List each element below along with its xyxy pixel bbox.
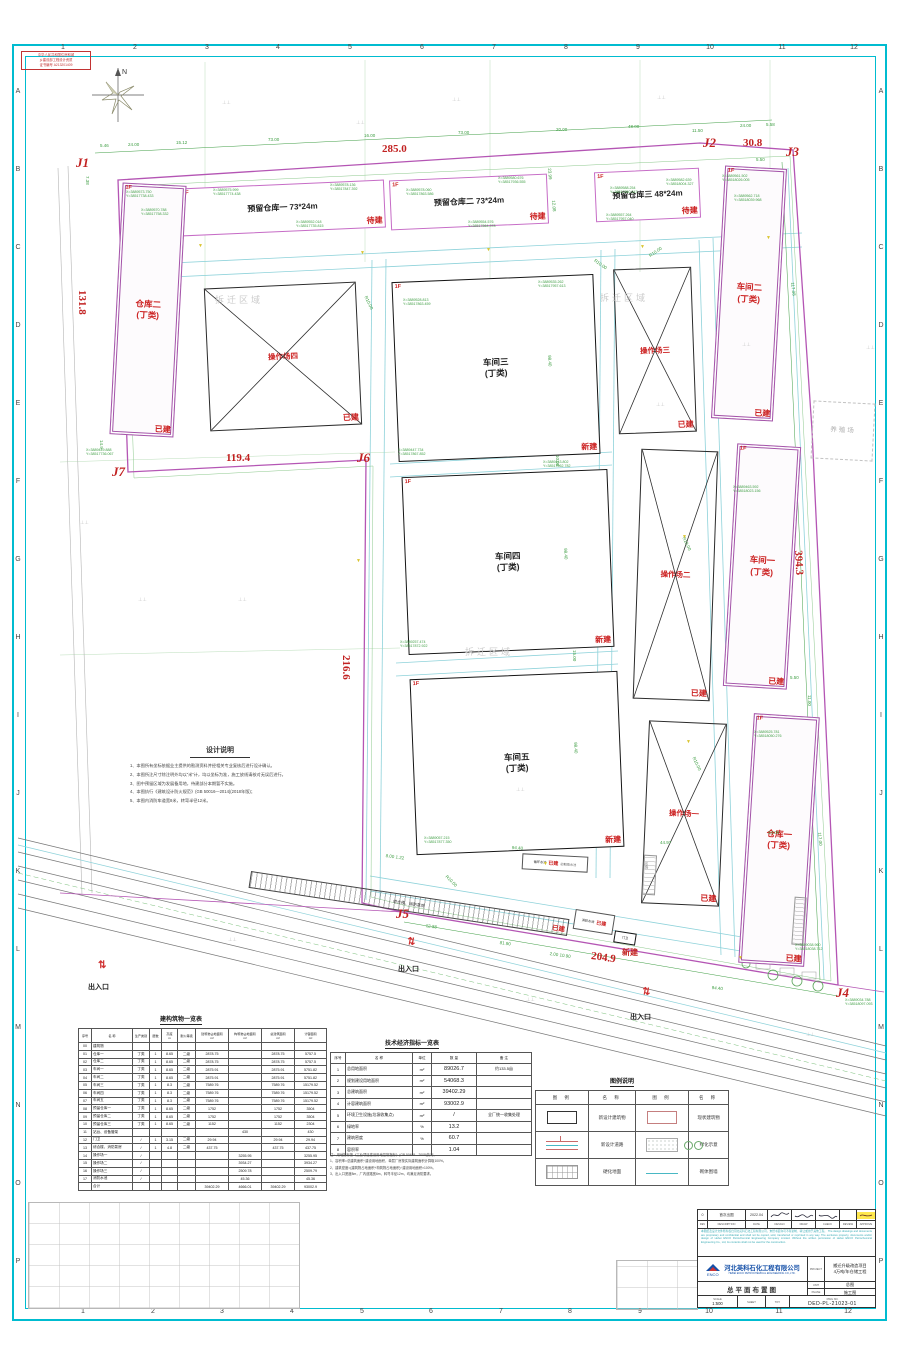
phase-label: PHASE (808, 1289, 825, 1296)
floor-label: 1F (756, 715, 763, 721)
table-row: 12门卫/13.15二级29.9429.9429.94 (79, 1136, 327, 1144)
building-label: 预留仓库二 73*24m (434, 195, 505, 208)
company-logo-icon: ENCO (705, 1262, 721, 1277)
table-cell (229, 1081, 262, 1089)
coordinate-label: X=3889447.734 Y=38517867.852 (398, 448, 425, 457)
dimension-label: 48.00 (628, 124, 639, 129)
coordinate-label: X=3889580.676 Y=38517936.555 (498, 176, 525, 185)
table-cell: 8.3 (162, 1089, 178, 1097)
coordinate-label: X=3889525.781 Y=38518050.276 (754, 730, 781, 739)
table-row: 16操作场三/2509.782509.79 (79, 1167, 327, 1175)
table-cell: 丁类 (133, 1058, 150, 1066)
floor-label: 1F (597, 174, 604, 180)
table-cell: 综合楼、消防泵房 (92, 1144, 133, 1152)
table-cell: 00 (79, 1043, 92, 1051)
company-name-cn: 河北英科石化工程有限公司 (724, 1263, 800, 1272)
scale-value: 1:500 (712, 1301, 722, 1306)
table-cell: 3255.95 (295, 1152, 327, 1160)
table-cell: 计容面积 m² (295, 1029, 327, 1043)
table-cell: 操作场一 (92, 1152, 133, 1160)
table-cell: 约133.5亩 (477, 1064, 532, 1076)
table-cell: m² (413, 1075, 432, 1087)
review-signature (840, 1210, 857, 1220)
survey-marker-icon: ▼ (356, 558, 361, 564)
table-cell (229, 1043, 262, 1051)
table-cell: 操作场二 (92, 1159, 133, 1167)
grid-marker-label: J2 (703, 135, 716, 151)
building-yard-3: 操作场三已建 (613, 267, 697, 435)
table-cell: % (413, 1121, 432, 1133)
table-cell (262, 1159, 295, 1167)
table-cell: 二级 (178, 1097, 196, 1105)
table-cell: m² (413, 1064, 432, 1076)
demolition-area-watermark: 拆迁区域 (465, 647, 513, 658)
table-cell: 2509.79 (295, 1167, 327, 1175)
revision-header-row: REV DESCRIPTION DATE DESIGN DRAW CHECK R… (698, 1221, 875, 1229)
design-note-line: 4、本图执行《建筑设计防火规范》(GB 50016—2014)(2018年版)； (130, 788, 430, 797)
table-row: 07车间五丁类18.3二级7589.767589.7615179.52 (79, 1097, 327, 1105)
boundary-dimension-label: 119.4 (226, 452, 250, 465)
table-cell: 12 (79, 1136, 92, 1144)
drawing-title: 总平面布置图 (698, 1282, 808, 1296)
table-cell: 车间一 (92, 1066, 133, 1074)
table-cell: 1 (331, 1064, 346, 1076)
design-notes: 设计说明 1、本图所有坐标依据业主提供的勘测资料并经相关专业复核后进行设计确认。… (130, 745, 430, 806)
status-label: 新建 (605, 834, 621, 846)
table-cell: 预留仓库二 (92, 1113, 133, 1121)
table-cell: 13 (79, 1144, 92, 1152)
boundary-dimension-label: 30.8 (743, 137, 762, 150)
table-cell: 29.94 (196, 1136, 229, 1144)
table-cell (262, 1167, 295, 1175)
table-row: 2规划建设用地面积m²54068.3 (331, 1075, 532, 1087)
table-cell (162, 1128, 178, 1136)
table-cell: 车间四 (92, 1089, 133, 1097)
table-cell: 05 (79, 1081, 92, 1089)
coordinate-label: X=3889575.999 Y=38517774.438 (213, 188, 240, 197)
table-cell: 1 (150, 1120, 162, 1128)
survey-marker-icon: ▼ (486, 247, 491, 253)
table-cell: 39402.29 (262, 1183, 295, 1191)
boundary-dimension-label: 394.3 (791, 550, 805, 575)
table-cell: 93002.9 (295, 1183, 327, 1191)
table-cell (196, 1128, 229, 1136)
table-cell: 二级 (178, 1144, 196, 1152)
table-cell: 13.2 (432, 1121, 477, 1133)
table-cell: 名 称 (346, 1053, 413, 1064)
floor-label: 1F (395, 284, 402, 290)
survey-marker-icon: ▼ (686, 739, 691, 745)
indicators-table: 序号名 称单位数 量备 注1总用地面积m²89026.7约133.5亩2规划建设… (330, 1052, 532, 1156)
rev-no: 0 (698, 1210, 708, 1220)
coordinate-label: X=3889570.788 Y=38517758.332 (141, 208, 168, 217)
table-cell: 数 量 (432, 1053, 477, 1064)
table-cell: 06 (79, 1089, 92, 1097)
legend-header: 名 称 (589, 1091, 635, 1105)
signature-grid-small (616, 1260, 698, 1310)
building-weighbridge (642, 855, 657, 896)
table-cell: 4666.01 (229, 1183, 262, 1191)
table-row: 11站台、设备管架430430 (79, 1128, 327, 1136)
table-cell: 5751.82 (295, 1074, 327, 1082)
table-cell (178, 1159, 196, 1167)
table-cell: 5751.82 (295, 1066, 327, 1074)
table-cell: 5 (331, 1110, 346, 1122)
floor-label: 1F (413, 681, 420, 687)
west-ditch-lines (58, 166, 92, 895)
coordinate-label: X=3889562.718 Y=38518039.968 (734, 194, 761, 203)
building-label: 门卫 (622, 935, 629, 940)
table-cell: / (133, 1167, 150, 1175)
table-cell: 8.65 (162, 1074, 178, 1082)
coordinate-label: X=3889535.262 Y=38517957.613 (538, 280, 565, 289)
table-cell: 1 (150, 1074, 162, 1082)
project-label: PROJECT (808, 1257, 825, 1281)
table-cell: 环境卫生设施(垃圾收集点) (346, 1110, 413, 1122)
table-row: 合计39402.294666.0139402.2993002.9 (79, 1183, 327, 1191)
table-row: 5环境卫生设施(垃圾收集点)m²/全厂统一收集处理 (331, 1110, 532, 1122)
table-cell (162, 1175, 178, 1183)
dimension-label: 15.12 (176, 140, 187, 145)
table-cell: 39402.29 (196, 1183, 229, 1191)
building-label: 车间一 (丁类) (749, 555, 776, 579)
coordinate-label: X=3889561.502 Y=38518026.005 (722, 174, 749, 183)
grid-marker-label: J1 (76, 155, 89, 171)
building-label: 车间三 (丁类) (483, 356, 509, 379)
coordinate-label: X=3889554.576 Y=38517864.378 (468, 220, 495, 229)
table-cell (178, 1175, 196, 1183)
dimension-label: 73.00 (268, 137, 279, 142)
dimension-label: 12.08 (551, 200, 557, 212)
table-row: 02仓库二丁类18.65二级2878.752878.755757.5 (79, 1058, 327, 1066)
table-cell (477, 1087, 532, 1099)
table-cell (150, 1159, 162, 1167)
building-sublabel: 初期雨水池 (560, 861, 576, 867)
stamp-line: 证书编号 A213201409 (22, 63, 90, 68)
scale-cell: SCALE 1:500 (698, 1296, 738, 1308)
table-cell: 430 (295, 1128, 327, 1136)
coordinate-label: X=3889463.592 Y=38518023.156 (733, 485, 760, 494)
coordinate-label: X=3889528.813 Y=38517863.459 (403, 298, 430, 307)
legend-name: 新设计道路 (589, 1132, 635, 1159)
dimension-label: 11.00 (807, 695, 812, 706)
building-label: 仓库二 (丁类) (135, 298, 162, 321)
grid-cross-icon: ⊥⊥ (238, 597, 247, 603)
dimension-label: 24.00 (768, 830, 779, 835)
status-label: 新建 (622, 948, 638, 958)
table-cell: 1 (150, 1105, 162, 1113)
table-cell: 高度 m (162, 1029, 178, 1043)
road-swatch-icon (546, 1139, 578, 1151)
legend-title: 图例说明 (610, 1076, 634, 1087)
table-cell: 丁类 (133, 1097, 150, 1105)
table-cell: 门卫 (92, 1136, 133, 1144)
table-cell: 总建筑面积 m² (262, 1029, 295, 1043)
table-cell: 二级 (178, 1050, 196, 1058)
building-workshop-4: 1F车间四 (丁类)新建 (402, 469, 615, 655)
boundary-dimension-label: 285.0 (382, 143, 407, 156)
dimension-label: 16.00 (364, 133, 375, 138)
table-row: 7建筑密度%60.7 (331, 1133, 532, 1145)
grid-cross-icon: ⊥⊥ (356, 120, 365, 126)
legend-header: 图 例 (536, 1091, 589, 1105)
table-row: 05车间三丁类18.3二级7589.767589.7615179.52 (79, 1081, 327, 1089)
survey-marker-icon: ▼ (543, 861, 548, 867)
table-cell: 437.75 (295, 1144, 327, 1152)
grid-cross-icon: ⊥⊥ (806, 1032, 815, 1038)
floor-label: 1F (392, 182, 399, 188)
table-cell: / (133, 1144, 150, 1152)
table-cell (133, 1183, 150, 1191)
table-cell: / (133, 1159, 150, 1167)
building-label: 车间四 (丁类) (495, 550, 521, 573)
table-cell: 仓库一 (92, 1050, 133, 1058)
table-cell: 丁类 (133, 1113, 150, 1121)
table-cell: % (413, 1133, 432, 1145)
rev-header: DATE (746, 1221, 768, 1228)
table-row: 1总用地面积m²89026.7约133.5亩 (331, 1064, 532, 1076)
status-label: 新建 (595, 634, 611, 646)
table-cell: 二级 (178, 1136, 196, 1144)
grid-cross-icon: ⊥⊥ (866, 345, 875, 351)
table-cell: 操作场三 (92, 1167, 133, 1175)
table-cell: 3 (331, 1087, 346, 1099)
table-cell: 5757.5 (295, 1058, 327, 1066)
table-cell: m² (413, 1098, 432, 1110)
table-cell (229, 1113, 262, 1121)
design-note-line: 1、本图所有坐标依据业主提供的勘测资料并经相关专业复核后进行设计确认。 (130, 762, 430, 771)
coordinate-label: X=3889038.960 Y=38518038.712 (795, 943, 822, 952)
phase-value: 施工图 (825, 1289, 875, 1296)
rev-header: REV (698, 1221, 708, 1228)
status-label: 新建 (581, 441, 597, 453)
rev-header: APPROVE (857, 1221, 875, 1228)
table-cell: 总建筑面积 (346, 1087, 413, 1099)
table-cell: 全厂统一收集处理 (477, 1110, 532, 1122)
survey-marker-icon: ▼ (682, 534, 687, 540)
design-note-line: 2、本图所注尺寸除注明外均以“米”计，均以坐标为准，施工放线请核对无误后进行。 (130, 771, 430, 780)
table-cell: 1 (150, 1089, 162, 1097)
table-row: 03车间一丁类18.65二级2875.912875.915751.82 (79, 1066, 327, 1074)
table-cell: 二级 (178, 1074, 196, 1082)
dimension-label: 98.40 (573, 742, 579, 754)
table-cell: 15 (79, 1159, 92, 1167)
table-cell: / (133, 1175, 150, 1183)
table-cell: 计容建筑面积 (346, 1098, 413, 1110)
table-cell (150, 1175, 162, 1183)
table-cell: 1 (150, 1113, 162, 1121)
table-cell: / (432, 1110, 477, 1122)
table-cell: 建筑物占地面积 m² (196, 1029, 229, 1043)
table-cell: 16 (79, 1167, 92, 1175)
grid-cross-icon: ⊥⊥ (742, 342, 751, 348)
table-cell (477, 1121, 532, 1133)
table-cell (178, 1043, 196, 1051)
table-cell: 丁类 (133, 1105, 150, 1113)
table-cell: 丁类 (133, 1089, 150, 1097)
grid-marker-label: J3 (786, 144, 799, 160)
table-cell: 29.94 (262, 1136, 295, 1144)
grid-cross-icon: ⊥⊥ (138, 597, 147, 603)
dimension-label: 20.00 (556, 127, 567, 132)
building-label: 消防水池 (581, 918, 594, 924)
table-cell: 二级 (178, 1058, 196, 1066)
project-line2: 4万吨/年仓储工程 (834, 1269, 867, 1275)
dimension-label: 117.00 (817, 832, 824, 846)
coordinate-label: X=3889449.888 Y=38517736.067 (86, 448, 113, 457)
table-cell (150, 1043, 162, 1051)
table-row: 04车间二丁类18.65二级2875.912875.915751.82 (79, 1074, 327, 1082)
grid-cross-icon: ⊥⊥ (657, 95, 666, 101)
table-cell: 2875.91 (262, 1074, 295, 1082)
table-cell: 8.65 (162, 1113, 178, 1121)
status-label: 待建 (681, 205, 697, 217)
table-cell: 2878.75 (196, 1058, 229, 1066)
table-cell: 车间三 (92, 1081, 133, 1089)
table-cell: 3504 (295, 1113, 327, 1121)
dimension-label: 98.40 (563, 548, 569, 560)
demolition-area-watermark: 拆迁区域 (215, 295, 263, 306)
dimension-label: 5.58 (766, 122, 775, 127)
table-cell: 消防水池 (92, 1175, 133, 1183)
table-row: 10预留仓库三丁类18.65二级115211522304 (79, 1120, 327, 1128)
coordinate-label: X=3889557.264 Y=38517957.040 (606, 213, 633, 222)
status-label: 已建 (785, 953, 802, 965)
table-cell (229, 1074, 262, 1082)
qualification-stamp: 中华人民共和国住房和城 乡建设部工程设计资质 证书编号 A213201409 (21, 51, 91, 70)
table-cell: 89026.7 (432, 1064, 477, 1076)
table-cell (262, 1175, 295, 1183)
table-cell: 11 (79, 1128, 92, 1136)
floor-label: 1F (405, 479, 412, 485)
table-cell: 4.8 (162, 1144, 178, 1152)
status-label: 已建 (677, 419, 693, 431)
table-cell: 45.36 (295, 1175, 327, 1183)
table-row: 01仓库一丁类18.65二级2878.752878.755757.5 (79, 1050, 327, 1058)
project-name: 搬迁升级改造项目 4万吨/年仓储工程 (825, 1257, 875, 1281)
table-cell (229, 1105, 262, 1113)
table-cell: 1152 (196, 1120, 229, 1128)
approve-signature (857, 1210, 875, 1220)
table-cell (229, 1120, 262, 1128)
table-cell: 7589.76 (196, 1089, 229, 1097)
table-cell: 备 注 (477, 1053, 532, 1064)
table-cell (229, 1136, 262, 1144)
table-cell (162, 1159, 178, 1167)
table-cell: 二级 (178, 1089, 196, 1097)
coordinate-label: X=3889582.639 Y=38518004.327 (666, 178, 693, 187)
table-cell: 15179.52 (295, 1097, 327, 1105)
unit-value: 总图 (825, 1282, 875, 1288)
table-row: 06车间四丁类18.3二级7589.767589.7615179.52 (79, 1089, 327, 1097)
table-cell: / (133, 1152, 150, 1160)
table-cell: 7589.76 (262, 1097, 295, 1105)
table-cell: 1 (150, 1050, 162, 1058)
indicators-table-title: 技术经济指标一览表 (385, 1038, 439, 1049)
table-cell: 3.15 (162, 1136, 178, 1144)
dimension-label: 98.40 (547, 355, 553, 367)
grid-cross-icon: ⊥⊥ (222, 100, 231, 106)
signature-grid (28, 1202, 300, 1309)
company-name-en: HEBEI ENCO PETROCHEMICAL ENGINEERING CO.… (729, 1272, 796, 1275)
dwg-no-cell: DWG NO. DED-PL-21023-01 (790, 1296, 875, 1308)
table-cell: 耐火等级 (178, 1029, 196, 1043)
table-cell (229, 1066, 262, 1074)
grid-cross-icon: ⊥⊥ (656, 402, 665, 408)
table-cell: 车间五 (92, 1097, 133, 1105)
boundary-dimension-label: 131.8 (75, 290, 88, 315)
coordinate-label: X=3889443.802 Y=38517962.782 (543, 460, 570, 469)
title-block: 0 首次出图 2022.04 REV DESCRIPTION DATE DESI… (697, 1209, 876, 1308)
yard-cross-icon (634, 450, 718, 700)
coordinate-label: X=3889057.215 Y=38517877.350 (424, 836, 451, 845)
rev-header: DESIGN (768, 1221, 792, 1228)
status-label: 待建 (529, 211, 545, 223)
grid-cross-icon: ⊥⊥ (80, 520, 89, 526)
table-cell: 6 (331, 1121, 346, 1133)
table-cell: 1 (150, 1136, 162, 1144)
table-cell (229, 1144, 262, 1152)
dimension-label: 24.00 (740, 123, 751, 128)
table-cell: / (133, 1136, 150, 1144)
table-cell: 二级 (178, 1113, 196, 1121)
table-cell: 08 (79, 1105, 92, 1113)
table-cell: 8.65 (162, 1050, 178, 1058)
rev-header: REVIEW (840, 1221, 857, 1228)
existing-building-swatch-icon (647, 1111, 677, 1124)
table-row: 4计容建筑面积m²93002.9 (331, 1098, 532, 1110)
table-cell: 单位 (413, 1053, 432, 1064)
table-cell: 3934.27 (229, 1159, 262, 1167)
table-cell: 二级 (178, 1066, 196, 1074)
table-cell: 建筑密度 (346, 1133, 413, 1145)
table-cell: 1 (150, 1144, 162, 1152)
dimension-label: 94.40 (512, 845, 524, 851)
indicator-notes: 注：用地指标按《工业项目建设用地控制指标》(GB 50489—2009)执行。 … (330, 1152, 530, 1177)
north-label: N (122, 69, 127, 76)
building-yard-2: 操作场二已建 (633, 449, 719, 702)
table-cell: 2875.91 (196, 1074, 229, 1082)
table-cell (178, 1167, 196, 1175)
table-cell: 层数 (150, 1029, 162, 1043)
dimension-label: 5.46 (100, 143, 109, 148)
table-cell: 2875.91 (196, 1066, 229, 1074)
drawing-sheet: 112233445566778899101011111212AABBCCDDEE… (0, 0, 900, 1363)
table-cell: 建筑物 (92, 1043, 133, 1051)
building-label: 养殖场 (830, 426, 856, 436)
table-cell (477, 1098, 532, 1110)
table-cell (150, 1167, 162, 1175)
table-cell: 8.65 (162, 1058, 178, 1066)
survey-marker-icon: ▼ (198, 243, 203, 249)
table-cell: 1 (150, 1058, 162, 1066)
table-cell: 车间二 (92, 1074, 133, 1082)
table-cell (196, 1152, 229, 1160)
table-cell: 1 (150, 1097, 162, 1105)
table-cell: m² (413, 1087, 432, 1099)
rev-header: DRAW (792, 1221, 816, 1228)
table-row: 14操作场一/3255.953255.95 (79, 1152, 327, 1160)
grid-cross-icon: ⊥⊥ (526, 997, 535, 1003)
table-cell: 7589.76 (196, 1081, 229, 1089)
table-cell: 站台、设备管架 (92, 1128, 133, 1136)
table-cell (295, 1043, 327, 1051)
table-cell: 二级 (178, 1105, 196, 1113)
table-row: 17消防水池/45.3645.36 (79, 1175, 327, 1183)
grid-marker-label: J7 (112, 464, 125, 480)
table-cell: 预留仓库三 (92, 1120, 133, 1128)
table-cell: 01 (79, 1050, 92, 1058)
